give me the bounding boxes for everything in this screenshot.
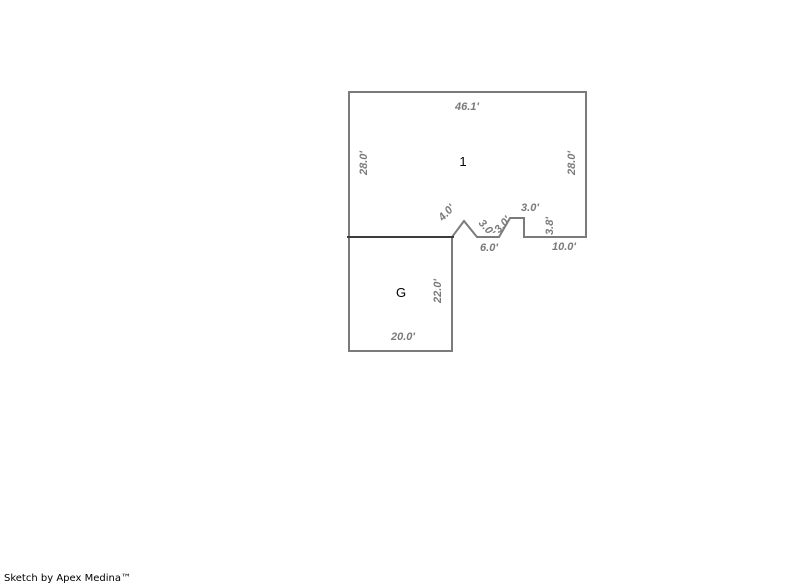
area1-wall-outline: [349, 92, 586, 237]
dim-notch-base-6: 6.0': [480, 242, 498, 254]
dim-notch-diag-4: 4.0': [436, 202, 458, 224]
dim-garage-height: 22.0': [432, 279, 444, 304]
room-label-garage: G: [396, 285, 406, 300]
floorplan-drawing: 46.1' 28.0' 28.0' 4.0' 3.0' 6.0' 3.0' 3.…: [0, 0, 800, 587]
dim-left-height: 28.0': [358, 151, 370, 176]
sketch-credit-text: Sketch by Apex Medina™: [4, 573, 131, 585]
floorplan-sketch-page: 46.1' 28.0' 28.0' 4.0' 3.0' 6.0' 3.0' 3.…: [0, 0, 800, 587]
dim-top-width: 46.1': [454, 101, 479, 113]
dim-bump-side-3-8: 3.8': [544, 217, 556, 235]
dim-garage-width: 20.0': [390, 331, 415, 343]
room-label-area1: 1: [459, 154, 466, 169]
dim-bump-top-3: 3.0': [521, 202, 539, 214]
dim-right-height: 28.0': [566, 151, 578, 176]
dim-base-10: 10.0': [552, 241, 576, 253]
